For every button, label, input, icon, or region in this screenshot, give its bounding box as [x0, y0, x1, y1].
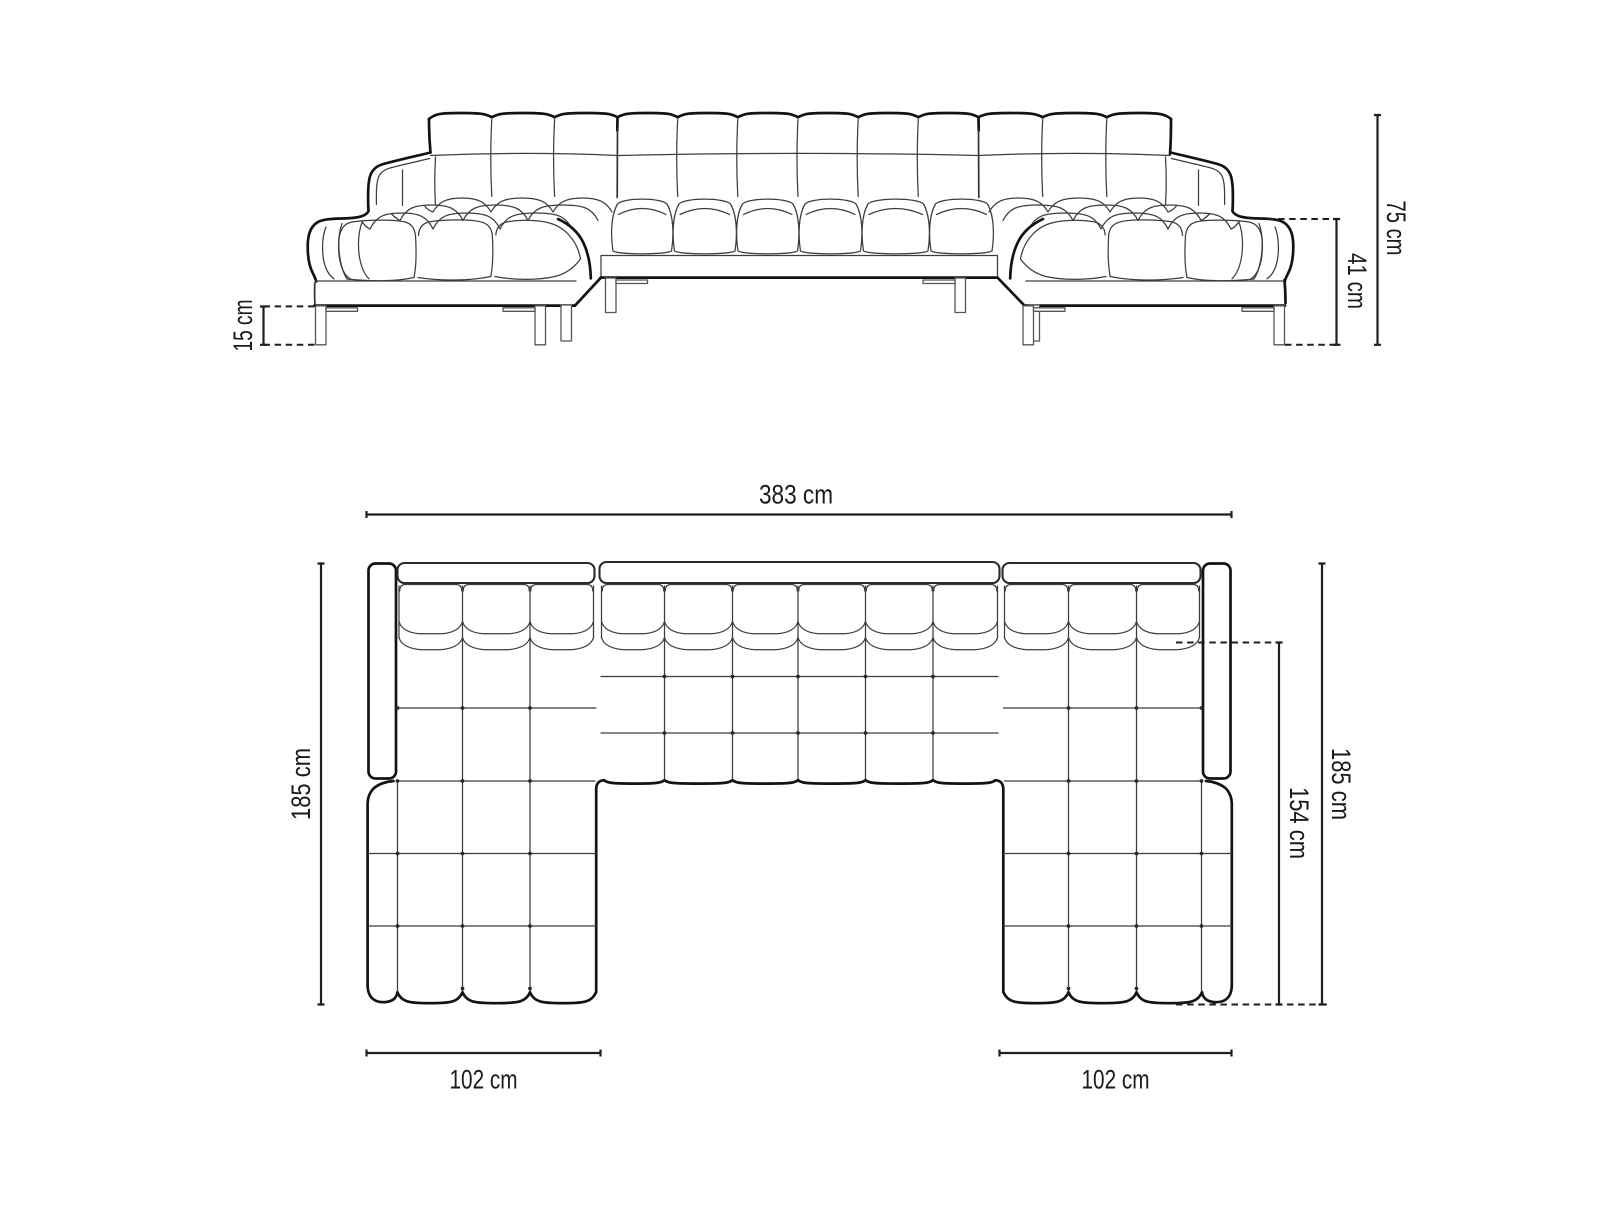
svg-text:102 cm: 102 cm	[450, 1065, 518, 1095]
svg-text:185 cm: 185 cm	[1326, 748, 1356, 820]
svg-text:15 cm: 15 cm	[228, 300, 258, 352]
svg-text:41 cm: 41 cm	[1342, 253, 1372, 309]
svg-text:383 cm: 383 cm	[759, 480, 833, 510]
svg-text:102 cm: 102 cm	[1082, 1065, 1150, 1095]
svg-text:185 cm: 185 cm	[286, 748, 316, 820]
svg-text:154 cm: 154 cm	[1284, 787, 1314, 859]
svg-text:75 cm: 75 cm	[1381, 201, 1411, 256]
